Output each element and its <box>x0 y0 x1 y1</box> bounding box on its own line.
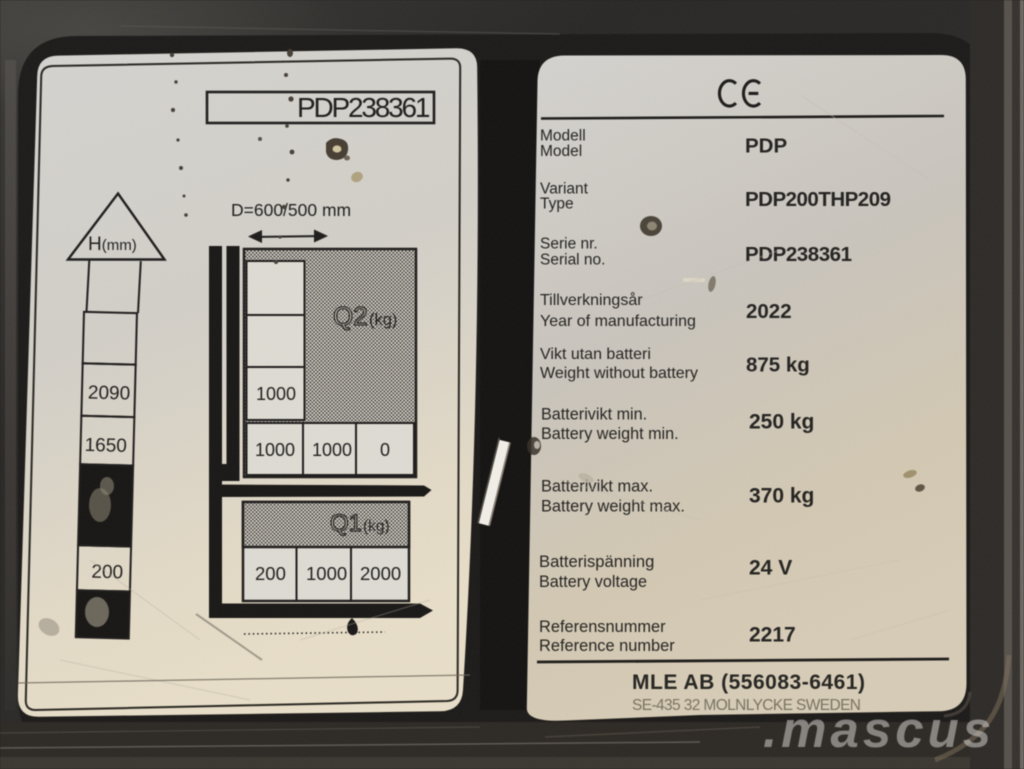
svg-text:.mascus: .mascus <box>763 701 995 758</box>
